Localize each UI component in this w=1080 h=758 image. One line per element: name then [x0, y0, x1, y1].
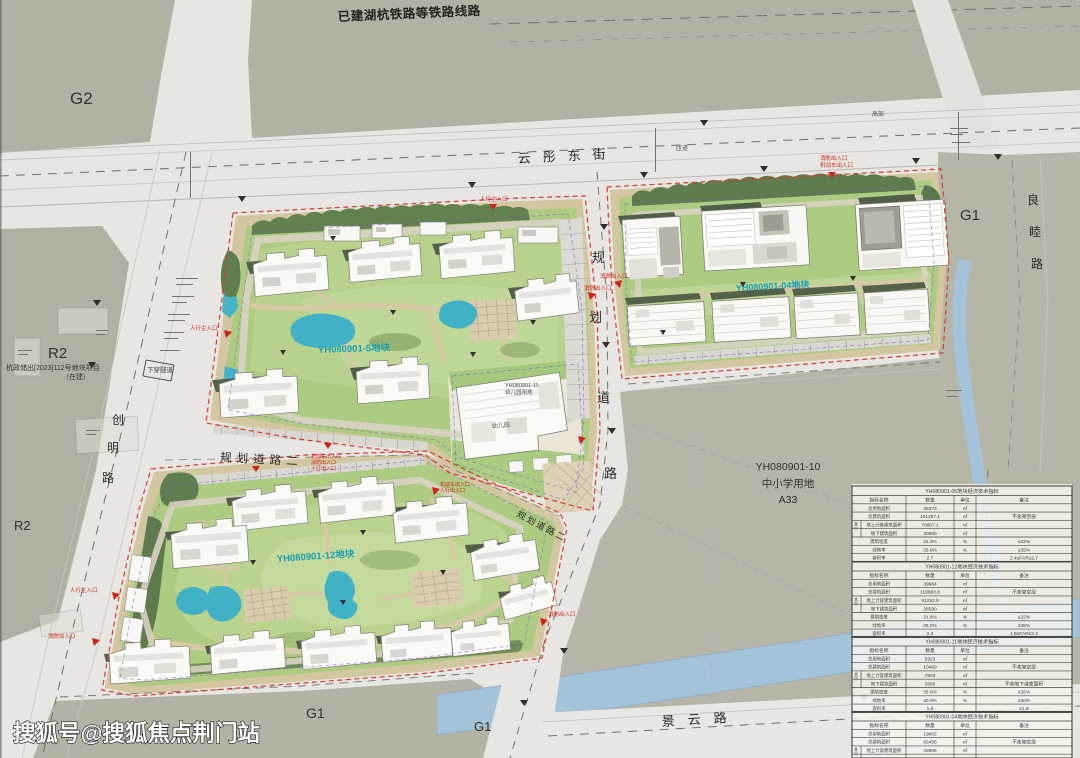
- svg-text:指标名称: 指标名称: [869, 722, 888, 729]
- svg-text:%: %: [963, 623, 968, 629]
- svg-text:30900: 30900: [923, 531, 937, 537]
- svg-text:总建筑面积: 总建筑面积: [868, 589, 891, 596]
- svg-text:其: 其: [854, 748, 858, 752]
- svg-text:%: %: [963, 615, 968, 621]
- svg-text:道: 道: [597, 390, 610, 405]
- svg-text:YH080901-5地块: YH080901-5地块: [318, 341, 391, 356]
- svg-text:明: 明: [107, 441, 119, 455]
- svg-text:匝道: 匝道: [676, 144, 688, 152]
- svg-text:10460: 10460: [923, 665, 937, 671]
- svg-text:中: 中: [854, 677, 858, 682]
- svg-text:㎡: ㎡: [963, 580, 968, 587]
- svg-text:总建筑面积: 总建筑面积: [868, 664, 891, 671]
- svg-text:㎡: ㎡: [963, 747, 968, 754]
- svg-text:㎡: ㎡: [963, 522, 968, 529]
- svg-text:建筑密度: 建筑密度: [870, 538, 888, 545]
- svg-text:单位: 单位: [960, 572, 970, 579]
- svg-text:指标名称: 指标名称: [869, 497, 888, 504]
- svg-text:35.0%: 35.0%: [923, 547, 937, 553]
- svg-text:路: 路: [604, 466, 617, 481]
- svg-text:A33: A33: [779, 494, 798, 506]
- svg-text:YH080901-11地块经济技术指标: YH080901-11地块经济技术指标: [925, 637, 998, 645]
- svg-text:杭政储出[2023]112号地块项目: 杭政储出[2023]112号地块项目: [6, 363, 100, 372]
- svg-text:21.8%: 21.8%: [923, 615, 937, 621]
- svg-text:不含地下课室面积: 不含地下课室面积: [1005, 680, 1044, 687]
- svg-text:数量: 数量: [925, 722, 935, 729]
- svg-text:㎡: ㎡: [963, 672, 968, 679]
- svg-text:创: 创: [112, 413, 124, 427]
- svg-text:中: 中: [854, 752, 858, 757]
- svg-text:28590: 28590: [923, 606, 937, 612]
- svg-text:YH080901-10: YH080901-10: [756, 461, 821, 473]
- svg-text:G1: G1: [960, 207, 980, 224]
- svg-text:（在建）: （在建）: [62, 372, 90, 381]
- svg-text:㎡: ㎡: [963, 655, 968, 662]
- svg-text:单位: 单位: [960, 722, 970, 729]
- svg-text:路: 路: [102, 470, 114, 485]
- svg-text:总建筑面积: 总建筑面积: [868, 513, 891, 520]
- svg-text:地上计容建筑面积: 地上计容建筑面积: [866, 747, 902, 754]
- svg-text:%: %: [963, 690, 968, 696]
- svg-text:中: 中: [854, 526, 858, 531]
- svg-text:机动车出入口: 机动车出入口: [440, 481, 470, 488]
- svg-text:70867.1: 70867.1: [921, 523, 939, 529]
- svg-text:35.0%: 35.0%: [923, 623, 937, 629]
- svg-text:人行出入口: 人行出入口: [311, 465, 336, 472]
- svg-text:地下建筑面积: 地下建筑面积: [871, 680, 898, 687]
- svg-text:㎡: ㎡: [963, 505, 968, 512]
- svg-text:㎡: ㎡: [963, 597, 968, 604]
- svg-text:不含架空层: 不含架空层: [1012, 513, 1036, 520]
- svg-text:地下建筑面积: 地下建筑面积: [871, 605, 898, 612]
- svg-text:建筑密度: 建筑密度: [870, 614, 888, 621]
- svg-text:地上计容建筑面积: 地上计容建筑面积: [866, 522, 902, 529]
- svg-text:2.7: 2.7: [927, 556, 934, 562]
- svg-text:消防出入口: 消防出入口: [600, 272, 628, 280]
- svg-text:YH080901-04地块经济技术指标: YH080901-04地块经济技术指标: [925, 712, 999, 720]
- svg-text:搜狐号@搜狐焦点荆门站: 搜狐号@搜狐焦点荆门站: [13, 720, 260, 746]
- svg-text:㎡: ㎡: [963, 589, 968, 596]
- svg-text:指标名称: 指标名称: [869, 572, 888, 579]
- svg-text:建筑密度: 建筑密度: [870, 689, 888, 696]
- svg-text:㎡: ㎡: [963, 605, 968, 612]
- svg-text:19802: 19802: [923, 731, 937, 737]
- svg-text:数量: 数量: [925, 497, 935, 504]
- svg-text:总用地面积: 总用地面积: [868, 580, 891, 587]
- svg-text:其: 其: [854, 523, 858, 527]
- svg-text:总用地面积: 总用地面积: [868, 505, 891, 512]
- svg-text:备注: 备注: [1019, 647, 1029, 654]
- svg-text:65456: 65456: [923, 740, 937, 746]
- svg-text:消防出入口: 消防出入口: [820, 154, 848, 162]
- svg-text:㎡: ㎡: [963, 739, 968, 746]
- svg-text:备注: 备注: [1019, 722, 1029, 729]
- svg-text:101287.1: 101287.1: [920, 514, 940, 520]
- svg-text:数量: 数量: [925, 647, 935, 654]
- svg-text:30.0%: 30.0%: [923, 698, 937, 704]
- svg-text:消防出入口: 消防出入口: [311, 459, 336, 466]
- svg-text:㎡: ㎡: [963, 530, 968, 537]
- svg-text:地上计容建筑面积: 地上计容建筑面积: [866, 672, 902, 679]
- svg-text:消防出入口: 消防出入口: [548, 610, 576, 618]
- svg-text:划: 划: [589, 310, 602, 325]
- svg-text:R2: R2: [14, 518, 31, 533]
- svg-text:良: 良: [1027, 192, 1039, 207]
- svg-text:中: 中: [854, 602, 858, 607]
- svg-text:中小学用地: 中小学用地: [762, 477, 815, 490]
- svg-text:YH080901-05地块经济技术指标: YH080901-05地块经济技术指标: [925, 487, 999, 495]
- svg-text:≥35%: ≥35%: [1018, 547, 1031, 553]
- svg-text:G1: G1: [306, 705, 325, 721]
- svg-text:R2: R2: [48, 345, 67, 362]
- svg-text:YH080901-11: YH080901-11: [505, 383, 539, 389]
- svg-text:规: 规: [592, 250, 605, 265]
- svg-text:91293.9: 91293.9: [921, 598, 939, 604]
- svg-text:机动车出入口: 机动车出入口: [820, 161, 853, 169]
- svg-text:G1: G1: [474, 719, 491, 734]
- svg-text:备注: 备注: [1019, 572, 1029, 579]
- svg-text:总用地面积: 总用地面积: [868, 730, 891, 737]
- svg-text:≤22%: ≤22%: [1018, 615, 1031, 621]
- svg-text:其: 其: [854, 598, 858, 602]
- svg-text:㎡: ㎡: [963, 680, 968, 687]
- svg-text:5923: 5923: [925, 656, 936, 662]
- svg-text:单位: 单位: [960, 647, 970, 654]
- svg-text:路: 路: [1031, 256, 1043, 271]
- svg-text:备注: 备注: [1019, 497, 1029, 504]
- svg-text:不含架空层: 不含架空层: [1012, 589, 1036, 596]
- svg-text:下穿隧道: 下穿隧道: [147, 365, 174, 374]
- svg-text:119883.8: 119883.8: [920, 590, 940, 596]
- svg-text:高架: 高架: [872, 110, 884, 118]
- svg-text:不含架空层: 不含架空层: [1012, 664, 1036, 671]
- svg-text:绿地率: 绿地率: [872, 546, 886, 553]
- svg-text:消防出入口: 消防出入口: [584, 284, 612, 292]
- svg-text:绿地率: 绿地率: [872, 697, 886, 704]
- svg-text:地下建筑面积: 地下建筑面积: [871, 530, 898, 537]
- svg-text:35.0%: 35.0%: [923, 690, 937, 696]
- svg-text:睦: 睦: [1029, 225, 1041, 239]
- svg-text:指标名称: 指标名称: [869, 647, 888, 654]
- svg-text:人行主入口: 人行主入口: [70, 586, 98, 594]
- svg-text:≤35%: ≤35%: [1018, 690, 1031, 696]
- svg-text:总建筑面积: 总建筑面积: [868, 739, 891, 746]
- svg-text:%: %: [963, 547, 968, 553]
- svg-text:消防出入口: 消防出入口: [48, 632, 76, 640]
- svg-text:绿地率: 绿地率: [872, 622, 886, 629]
- svg-text:㎡: ㎡: [963, 513, 968, 520]
- svg-text:%: %: [963, 539, 968, 545]
- svg-text:2.4≤FAR≤2.7: 2.4≤FAR≤2.7: [1010, 556, 1038, 562]
- svg-text:%: %: [963, 698, 968, 704]
- svg-text:机动车出入口: 机动车出入口: [311, 453, 341, 460]
- svg-text:单位: 单位: [960, 497, 970, 504]
- svg-text:人行主入口: 人行主入口: [190, 324, 218, 332]
- svg-text:容积率: 容积率: [872, 555, 886, 562]
- svg-text:29606: 29606: [923, 748, 937, 754]
- svg-text:人行出入口: 人行出入口: [440, 487, 465, 494]
- svg-text:28373: 28373: [923, 506, 937, 512]
- svg-text:≤22%: ≤22%: [1018, 539, 1031, 545]
- svg-text:不含架空层: 不含架空层: [1012, 739, 1036, 746]
- svg-text:G2: G2: [70, 89, 93, 108]
- svg-text:其: 其: [854, 673, 858, 677]
- svg-text:㎡: ㎡: [963, 664, 968, 671]
- svg-text:22.3%: 22.3%: [923, 539, 937, 545]
- svg-text:㎡: ㎡: [963, 730, 968, 737]
- svg-text:YH080901-12地块经济技术指标: YH080901-12地块经济技术指标: [925, 562, 999, 570]
- svg-text:幼儿园用地: 幼儿园用地: [505, 388, 533, 396]
- svg-text:7803: 7803: [925, 673, 936, 679]
- svg-text:人行主入口: 人行主入口: [480, 195, 508, 203]
- svg-text:地上计容建筑面积: 地上计容建筑面积: [866, 597, 902, 604]
- svg-text:总用地面积: 总用地面积: [868, 655, 891, 662]
- svg-text:2660: 2660: [925, 681, 936, 687]
- svg-text:≥35%: ≥35%: [1018, 623, 1031, 629]
- svg-text:数量: 数量: [925, 572, 935, 579]
- svg-text:39984: 39984: [923, 581, 937, 587]
- svg-text:≥30%: ≥30%: [1018, 698, 1031, 704]
